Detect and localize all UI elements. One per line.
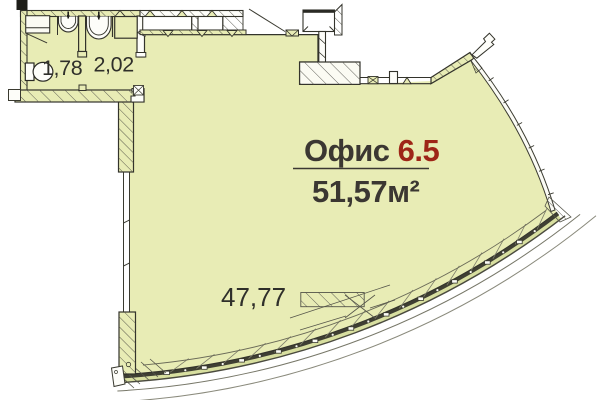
svg-text:1,78: 1,78	[42, 56, 83, 80]
svg-text:47,77: 47,77	[221, 282, 286, 312]
svg-text:2,02: 2,02	[94, 53, 134, 77]
svg-text:Офис 6.5: Офис 6.5	[304, 133, 440, 168]
svg-text:51,57м²: 51,57м²	[312, 174, 420, 209]
